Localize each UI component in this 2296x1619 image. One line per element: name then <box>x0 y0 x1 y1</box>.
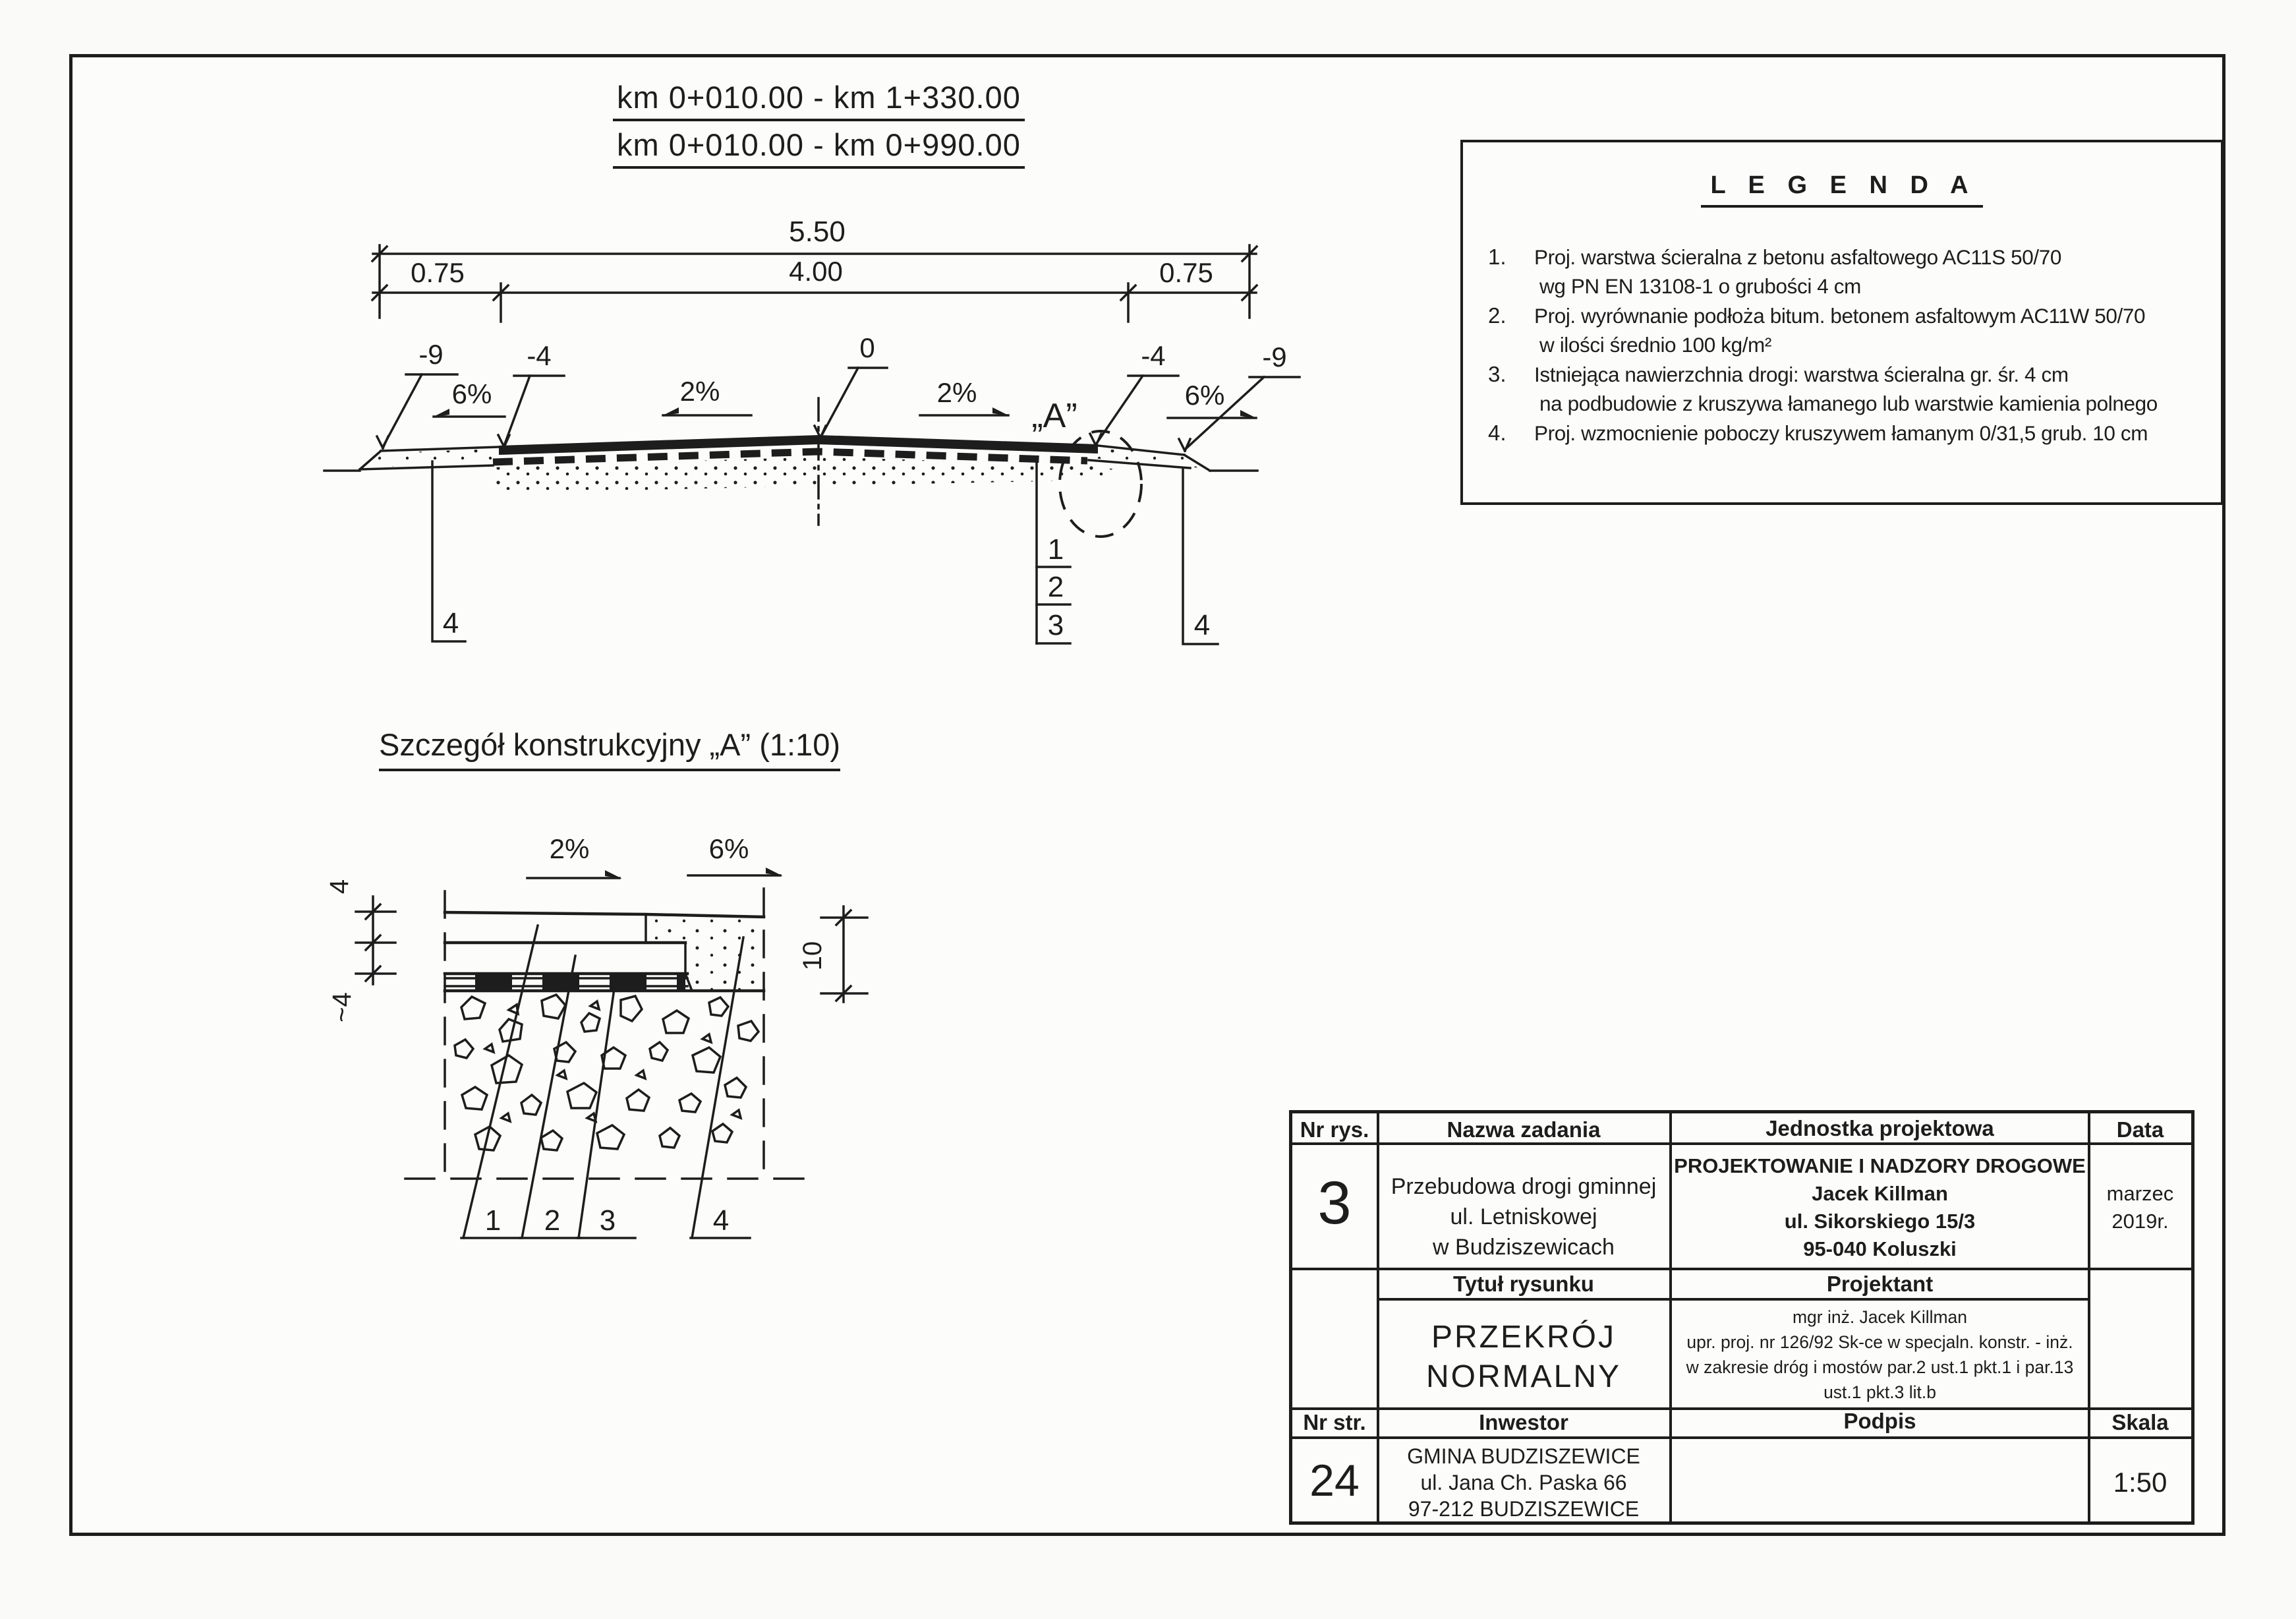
header-nazwa-zadania: Nazwa zadania <box>1378 1117 1669 1142</box>
drawing-number: 3 <box>1292 1169 1377 1238</box>
designer-line-3: w zakresie dróg i mostów par.2 ust.1 pkt… <box>1672 1357 2088 1378</box>
slope-left-2-label: 2% <box>680 376 720 407</box>
header-nr-rys: Nr rys. <box>1292 1117 1377 1142</box>
asphalt-layer <box>499 435 1098 455</box>
titleblock-hline-2 <box>1292 1268 2191 1270</box>
elev-axis-0-label: 0 <box>859 332 875 363</box>
legend-item-4: 4. Proj. wzmocnienie poboczy kruszywem ł… <box>1488 419 2206 448</box>
dim-carriageway-label: 4.00 <box>789 256 843 287</box>
titleblock-hline-3 <box>1378 1298 2088 1301</box>
header-podpis: Podpis <box>1672 1409 2088 1434</box>
header-data: Data <box>2089 1117 2191 1142</box>
dimension-lanes: 0.75 4.00 0.75 <box>372 256 1257 322</box>
legend-item-2: 2. Proj. wyrównanie podłoża bitum. beton… <box>1488 301 2206 359</box>
drawing-title-line-2: NORMALNY <box>1378 1359 1669 1395</box>
callout-left-4: 4 <box>443 607 459 639</box>
legend-item-1-line-2: wg PN EN 13108-1 o grubości 4 cm <box>1534 272 2206 301</box>
detail-callout-3: 3 <box>600 1204 616 1237</box>
design-office-line-2: Jacek Killman <box>1672 1182 2088 1206</box>
investor-line-3: 97-212 BUDZISZEWICE <box>1378 1497 1669 1521</box>
detail-left-dimensions: 4 ~4 <box>325 879 395 1022</box>
legend-item-2-line-2: w ilości średnio 100 kg/m² <box>1534 330 2206 359</box>
detail-callout-1: 1 <box>485 1204 501 1237</box>
scanned-drawing-sheet: km 0+010.00 - km 1+330.00 km 0+010.00 - … <box>0 0 2296 1619</box>
legend-title: L E G E N D A <box>1463 171 2221 208</box>
header-nr-str: Nr str. <box>1292 1410 1377 1435</box>
callout-3: 3 <box>1048 609 1064 641</box>
legend-item-1-line-1: Proj. warstwa ścieralna z betonu asfalto… <box>1534 243 2206 272</box>
elev-right-4-label: -4 <box>1141 340 1165 371</box>
detail-layers <box>445 912 764 991</box>
callout-1: 1 <box>1048 533 1064 566</box>
designer-line-2: upr. proj. nr 126/92 Sk-ce w specjaln. k… <box>1672 1332 2088 1353</box>
legend-item-1: 1. Proj. warstwa ścieralna z betonu asfa… <box>1488 243 2206 301</box>
elev-right-9-label: -9 <box>1262 341 1286 372</box>
legend-item-4-line-1: Proj. wzmocnienie poboczy kruszywem łama… <box>1534 419 2206 448</box>
km-range-2-text: km 0+010.00 - km 0+990.00 <box>613 127 1025 169</box>
task-name-line-2: ul. Letniskowej <box>1378 1204 1669 1230</box>
slope-annotations: 6% 2% 2% 6% <box>432 376 1257 419</box>
legend-box: L E G E N D A 1. Proj. warstwa ścieralna… <box>1460 140 2224 505</box>
legend-item-3-number: 3. <box>1488 360 1534 389</box>
header-inwestor: Inwestor <box>1378 1410 1669 1435</box>
design-office-line-3: ul. Sikorskiego 15/3 <box>1672 1210 2088 1233</box>
task-name-line-1: Przebudowa drogi gminnej <box>1378 1174 1669 1200</box>
legend-items: 1. Proj. warstwa ścieralna z betonu asfa… <box>1488 243 2206 448</box>
road-cross-section <box>324 435 1257 492</box>
km-range-1-text: km 0+010.00 - km 1+330.00 <box>613 79 1025 121</box>
elev-left-4-label: -4 <box>527 340 551 371</box>
scale-value: 1:50 <box>2089 1467 2191 1498</box>
design-office-line-1: PROJEKTOWANIE I NADZORY DROGOWE <box>1672 1154 2088 1178</box>
dim-right-shoulder-label: 0.75 <box>1159 257 1213 288</box>
page-number: 24 <box>1292 1455 1377 1506</box>
legend-item-4-number: 4. <box>1488 419 1534 448</box>
header-projektant: Projektant <box>1672 1272 2088 1297</box>
detail-dim-10-label: 10 <box>798 941 827 971</box>
slope-left-6-label: 6% <box>452 378 492 409</box>
drawing-title-line-1: PRZEKRÓJ <box>1378 1319 1669 1355</box>
legend-item-3: 3. Istniejąca nawierzchnia drogi: warstw… <box>1488 360 2206 418</box>
design-office-line-4: 95-040 Koluszki <box>1672 1237 2088 1261</box>
detail-slope-6-label: 6% <box>709 833 749 864</box>
detail-callout-4: 4 <box>713 1204 729 1237</box>
header-skala: Skala <box>2089 1410 2191 1435</box>
callout-2: 2 <box>1048 571 1064 603</box>
detail-right-dimension: 10 <box>798 906 867 1002</box>
detail-drawing: 2% 6% 4 ~4 10 <box>303 824 929 1272</box>
detail-slope-2-label: 2% <box>550 833 590 864</box>
designer-line-4: ust.1 pkt.3 lit.b <box>1672 1382 2088 1403</box>
legend-item-3-line-1: Istniejąca nawierzchnia drogi: warstwa ś… <box>1534 360 2206 389</box>
dim-left-shoulder-label: 0.75 <box>411 257 465 288</box>
header-jednostka-projektowa: Jednostka projektowa <box>1672 1116 2088 1141</box>
investor-line-1: GMINA BUDZISZEWICE <box>1378 1444 1669 1469</box>
slope-right-6-label: 6% <box>1185 380 1225 411</box>
legend-item-3-line-2: na podbudowie z kruszywa łamanego lub wa… <box>1534 389 2206 418</box>
callout-right-4: 4 <box>1194 609 1210 641</box>
section-range-title: km 0+010.00 - km 1+330.00 km 0+010.00 - … <box>613 79 1021 174</box>
elevation-ordinates: -9 -4 0 -4 -9 <box>377 332 1300 525</box>
date-line-2: 2019r. <box>2089 1210 2191 1233</box>
legend-item-2-line-1: Proj. wyrównanie podłoża bitum. betonem … <box>1534 301 2206 330</box>
cross-section-drawing: 5.50 0.75 4.00 0.75 -9 -4 0 -4 <box>290 211 1331 686</box>
titleblock-hline-1 <box>1292 1142 2191 1145</box>
dim-total-label: 5.50 <box>789 216 846 248</box>
km-range-line-2: km 0+010.00 - km 0+990.00 <box>613 127 1021 169</box>
designer-line-1: mgr inż. Jacek Killman <box>1672 1307 2088 1328</box>
detail-callout-2: 2 <box>544 1204 560 1237</box>
task-name-line-3: w Budziszewicach <box>1378 1235 1669 1260</box>
detail-dim-4-label: 4 <box>325 879 354 894</box>
header-tytul-rysunku: Tytuł rysunku <box>1378 1272 1669 1297</box>
detail-title: Szczegół konstrukcyjny „A” (1:10) <box>379 726 840 771</box>
km-range-line-1: km 0+010.00 - km 1+330.00 <box>613 79 1021 121</box>
detail-dim-about4-label: ~4 <box>328 992 357 1022</box>
titleblock-hline-5 <box>1292 1436 2191 1439</box>
detail-a-mark: „A” <box>1031 397 1077 435</box>
elev-left-9-label: -9 <box>418 339 443 370</box>
date-line-1: marzec <box>2089 1182 2191 1206</box>
titleblock-vline-3 <box>2088 1113 2090 1521</box>
title-block: Nr rys. Nazwa zadania Jednostka projekto… <box>1289 1110 2195 1525</box>
detail-title-text: Szczegół konstrukcyjny „A” (1:10) <box>379 726 840 771</box>
slope-right-2-label: 2% <box>937 377 977 408</box>
field-stone-layer <box>455 995 759 1150</box>
legend-title-text: L E G E N D A <box>1701 171 1982 208</box>
legend-item-2-number: 2. <box>1488 301 1534 330</box>
investor-line-2: ul. Jana Ch. Paska 66 <box>1378 1471 1669 1495</box>
legend-item-1-number: 1. <box>1488 243 1534 272</box>
